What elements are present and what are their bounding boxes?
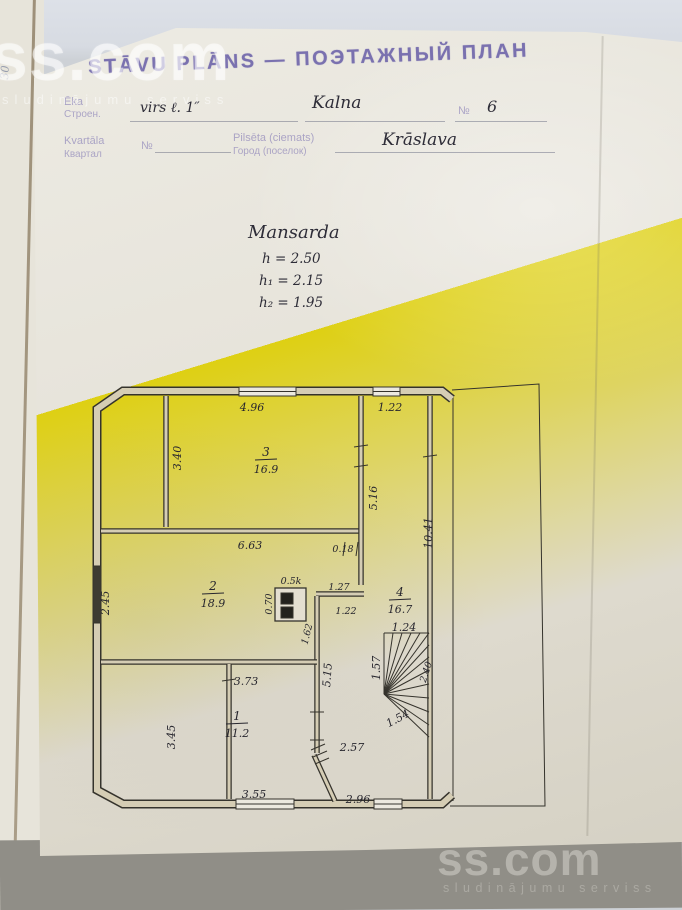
- dim-corridor-full: 10.41: [422, 517, 435, 549]
- watermark-bottom-brand: ss.com: [437, 832, 602, 886]
- height-note-h: h = 2.50: [262, 251, 321, 267]
- room3-number: 3: [262, 445, 270, 459]
- room4-number: 4: [395, 585, 404, 599]
- dim-wall-a: 6.63: [238, 539, 263, 552]
- dim-top-width: 4.96: [239, 401, 265, 414]
- dim-top-right: 1.22: [378, 401, 403, 414]
- dim-wall-mid: 1.62: [300, 623, 316, 646]
- dim-door: 1.22: [335, 606, 356, 617]
- stamp-title-separator: —: [264, 49, 287, 72]
- room2-area: 18.9: [201, 597, 226, 610]
- window-top-room3: [239, 387, 296, 396]
- dim-chimney: 0.5k: [281, 576, 302, 587]
- field-underline: [335, 152, 555, 153]
- dim-jog-wall: 1.27: [328, 582, 350, 593]
- floor-name-note: Mansarda: [248, 222, 340, 243]
- roof-outline: [450, 384, 545, 806]
- room2-number: 2: [208, 579, 217, 593]
- dim-room1-left: 3.45: [165, 725, 178, 750]
- dim-room3-left: 3.40: [171, 446, 184, 471]
- window-top-right: [373, 387, 400, 396]
- dim-chimney-width: 0.70: [264, 593, 275, 614]
- field-underline: [130, 121, 298, 122]
- number-label: №: [458, 105, 470, 117]
- block-no-label: №: [141, 140, 153, 152]
- room1-area: 11.2: [225, 727, 250, 740]
- dim-room1-top: 3.73: [234, 675, 259, 688]
- dim-wall-lower: 5.15: [320, 662, 335, 687]
- city-label-lv: Pilsēta (ciemats): [233, 132, 314, 144]
- height-note-h1: h₁ = 2.15: [259, 273, 323, 289]
- room1-number: 1: [233, 709, 241, 723]
- field-underline: [155, 152, 231, 153]
- dim-wall-thickness: 0.18: [332, 544, 353, 555]
- floorplan-drawing: 3 16.9 2 18.9 4 16.7 1 11.2 4.96 1.22 3.…: [70, 372, 575, 824]
- window-bottom-hall: [374, 799, 402, 809]
- chimney-block: [275, 588, 306, 621]
- dim-hall: 2.57: [339, 741, 365, 754]
- dim-bottom-right: 2.96: [345, 793, 371, 806]
- room4-area: 16.7: [388, 603, 413, 616]
- field-underline: [305, 121, 445, 122]
- block-label-ru: Квартал: [64, 149, 102, 160]
- dim-bottom-left: 3.55: [242, 788, 267, 801]
- room3-area: 16.9: [254, 463, 279, 476]
- house-number-handwritten: 6: [487, 97, 497, 116]
- city-value-handwritten: Krāslava: [382, 130, 457, 150]
- field-underline: [455, 121, 547, 122]
- watermark-top-tagline: sludinājumu serviss: [2, 92, 229, 107]
- building-label-ru: Строен.: [64, 109, 101, 120]
- dim-stairs-width: 1.24: [392, 621, 417, 634]
- city-label-ru: Город (поселок): [233, 146, 307, 157]
- watermark-top-brand: ss.com: [0, 18, 230, 96]
- dim-corridor-upper: 5.16: [367, 486, 380, 511]
- watermark-bottom-tagline: sludinājumu serviss: [443, 881, 657, 895]
- scanned-document: 30 STĀVU PLĀNS — ПОЭТАЖНЫЙ ПЛАН Ēka Стро…: [0, 0, 682, 910]
- dim-left-mid: 2.45: [99, 591, 112, 617]
- block-label-lv: Kvartāla: [64, 135, 104, 147]
- height-note-h2: h₂ = 1.95: [259, 295, 323, 311]
- dim-stairs-left: 1.57: [370, 656, 383, 681]
- street-value-handwritten: Kalna: [312, 93, 361, 113]
